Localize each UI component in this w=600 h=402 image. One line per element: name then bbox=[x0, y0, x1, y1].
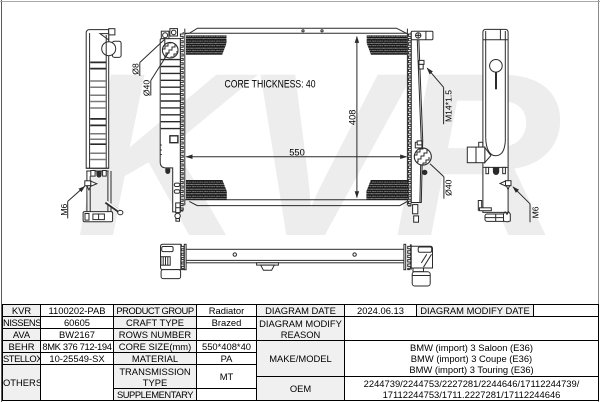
svg-text:Ø40: Ø40 bbox=[443, 179, 453, 195]
svg-text:Ø40: Ø40 bbox=[141, 80, 151, 96]
svg-text:M6: M6 bbox=[59, 204, 69, 216]
svg-text:550: 550 bbox=[289, 147, 305, 157]
svg-text:CORE THICKNESS: 40: CORE THICKNESS: 40 bbox=[225, 78, 316, 90]
svg-text:M14*1.5: M14*1.5 bbox=[444, 90, 454, 122]
svg-text:Ø8: Ø8 bbox=[130, 63, 140, 75]
svg-text:M6: M6 bbox=[530, 206, 540, 218]
svg-text:408: 408 bbox=[348, 110, 358, 126]
